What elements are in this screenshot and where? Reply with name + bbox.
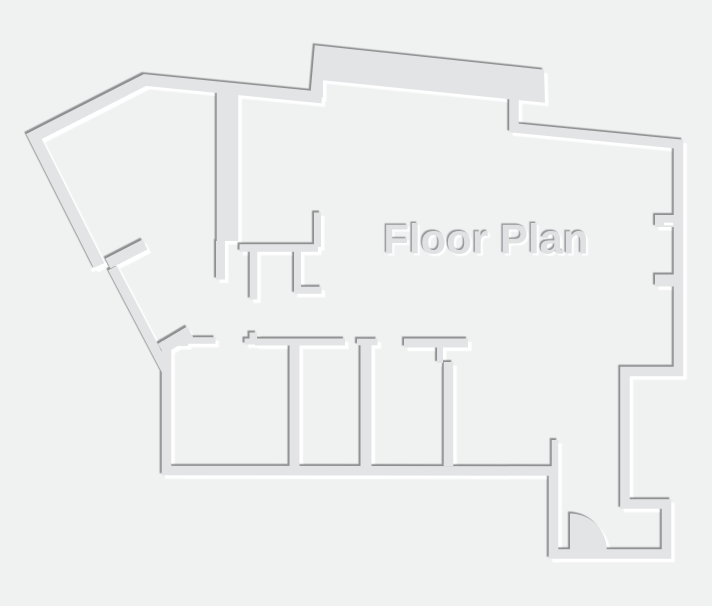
svg-text:Floor Plan: Floor Plan [383, 216, 588, 263]
